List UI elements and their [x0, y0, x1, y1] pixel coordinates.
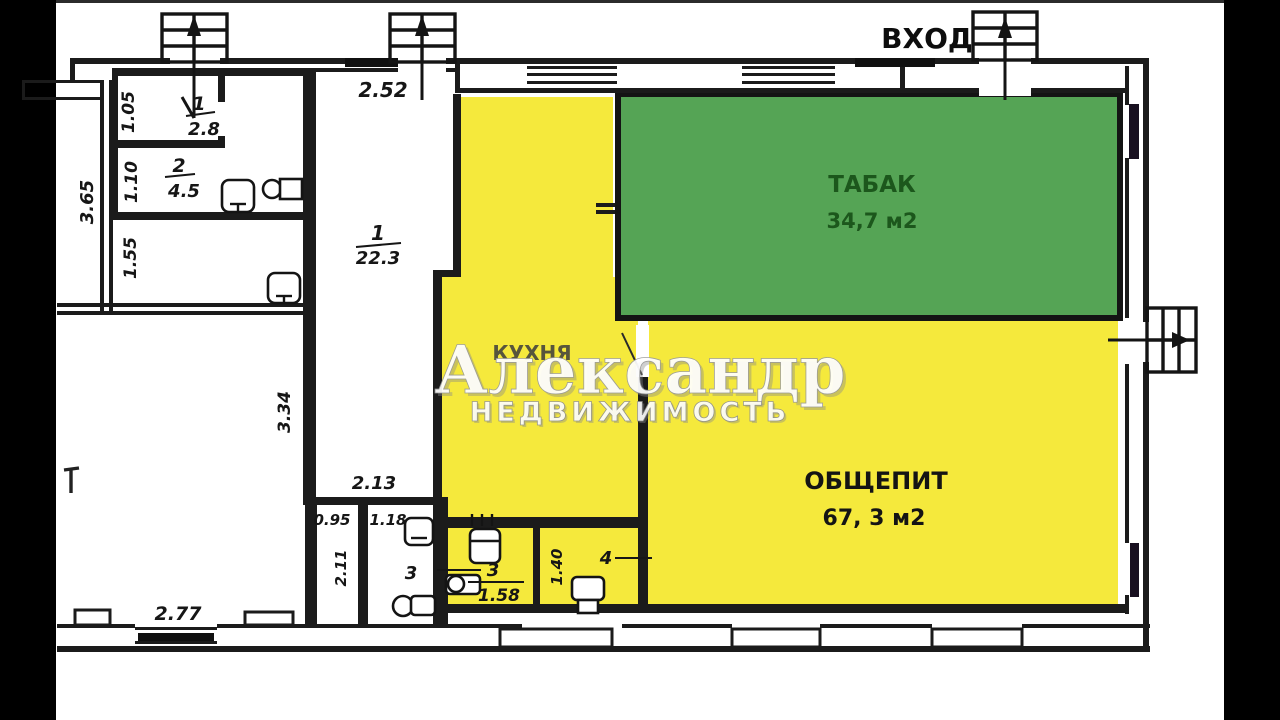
wall-segment — [358, 505, 368, 627]
window-line — [527, 73, 617, 76]
pier — [932, 629, 1022, 647]
window-line — [527, 66, 617, 69]
wall-segment — [1125, 595, 1129, 614]
wall-segment — [112, 212, 308, 220]
wall-segment — [57, 303, 308, 307]
dim-1-10: 1.10 — [122, 161, 142, 203]
watermark: Александр Александр НЕДВИЖИМОСТЬ НЕДВИЖИ… — [434, 331, 848, 430]
wall-segment — [303, 497, 448, 505]
entrance-label: ВХОД — [881, 22, 973, 55]
toilet-tank — [411, 596, 435, 615]
vent-mark — [596, 203, 615, 207]
wall-segment — [22, 97, 104, 100]
photo-right-bar — [1224, 0, 1280, 720]
dim-1-40: 1.40 — [548, 548, 566, 585]
pier — [500, 629, 612, 647]
wall-segment — [57, 311, 308, 315]
room2-number: 2 — [172, 155, 185, 177]
tabak-area: 34,7 м2 — [827, 209, 918, 233]
photo-top-edge — [56, 0, 1224, 3]
wall-segment — [22, 80, 104, 83]
wall-segment — [453, 94, 461, 277]
dim-3-65: 3.65 — [77, 180, 98, 224]
dim-3-34: 3.34 — [275, 391, 295, 433]
wall-segment — [218, 68, 225, 102]
kitchen-fill-upper — [461, 97, 613, 277]
watermark-subtitle: НЕДВИЖИМОСТЬ — [470, 397, 791, 428]
tabak-name: ТАБАК — [828, 172, 916, 198]
wall-segment — [303, 68, 316, 505]
window-line — [742, 73, 835, 76]
dim-1-18: 1.18 — [369, 511, 406, 529]
room2-area: 4.5 — [167, 181, 200, 202]
wall-segment — [433, 604, 1127, 613]
toilet-icon — [572, 577, 604, 600]
hall-area: 22.3 — [356, 248, 400, 269]
wall-segment — [1125, 158, 1129, 318]
bath3-area: 1.58 — [478, 586, 520, 606]
pier — [732, 629, 820, 647]
sink-icon — [405, 518, 433, 545]
wall-segment — [70, 58, 75, 82]
window-line — [742, 66, 835, 69]
window-line — [527, 81, 617, 84]
wall-segment — [308, 68, 398, 72]
wall-segment — [22, 80, 25, 100]
dim-0-95: 0.95 — [313, 511, 350, 529]
hall-number: 1 — [371, 221, 385, 245]
floor-plan: 1.05 1.10 3.65 1.55 2.52 3.34 2.13 0.95 … — [0, 0, 1280, 720]
wall-segment — [446, 68, 455, 72]
storeroom-number: 1 — [192, 93, 205, 115]
wall-segment — [1125, 66, 1129, 105]
window-dark — [855, 58, 935, 67]
wall-segment — [533, 527, 540, 612]
obshchepit-area: 67, 3 м2 — [823, 506, 926, 531]
tabak-room — [618, 94, 1120, 318]
dim-2-77: 2.77 — [155, 603, 203, 625]
window-line — [135, 627, 217, 630]
vent-mark — [596, 210, 615, 214]
boiler-icon — [263, 180, 281, 198]
heater-dial — [448, 576, 464, 592]
wall-segment — [100, 80, 104, 315]
wc3-number: 3 — [405, 563, 418, 584]
window-line — [742, 81, 835, 84]
window-line — [135, 641, 217, 644]
wall-segment — [1022, 624, 1150, 628]
pier — [245, 612, 293, 625]
storeroom-area: 2.8 — [188, 119, 220, 140]
wall-segment — [112, 68, 308, 76]
wall-segment — [1125, 364, 1129, 543]
pier — [75, 610, 110, 625]
window-dark — [138, 633, 214, 641]
obshchepit-name: ОБЩЕПИТ — [804, 467, 948, 495]
wc4-number: 4 — [599, 548, 613, 569]
wall-segment — [112, 140, 225, 148]
dim-1-55: 1.55 — [121, 237, 141, 279]
window-dark — [1129, 104, 1139, 159]
sink-icon — [470, 529, 500, 563]
window-dark — [1130, 543, 1139, 597]
photo-left-bar — [0, 0, 56, 720]
wall-segment — [433, 517, 648, 528]
boiler-tank — [280, 179, 302, 199]
dim-2-13: 2.13 — [352, 473, 396, 494]
toilet-bowl — [578, 600, 598, 613]
dim-2-11: 2.11 — [332, 549, 350, 586]
dim-1-05: 1.05 — [119, 91, 139, 133]
bath3-number: 3 — [487, 560, 500, 581]
wall-segment — [820, 624, 932, 628]
dim-2-52: 2.52 — [358, 78, 407, 102]
wall-segment — [622, 624, 732, 628]
